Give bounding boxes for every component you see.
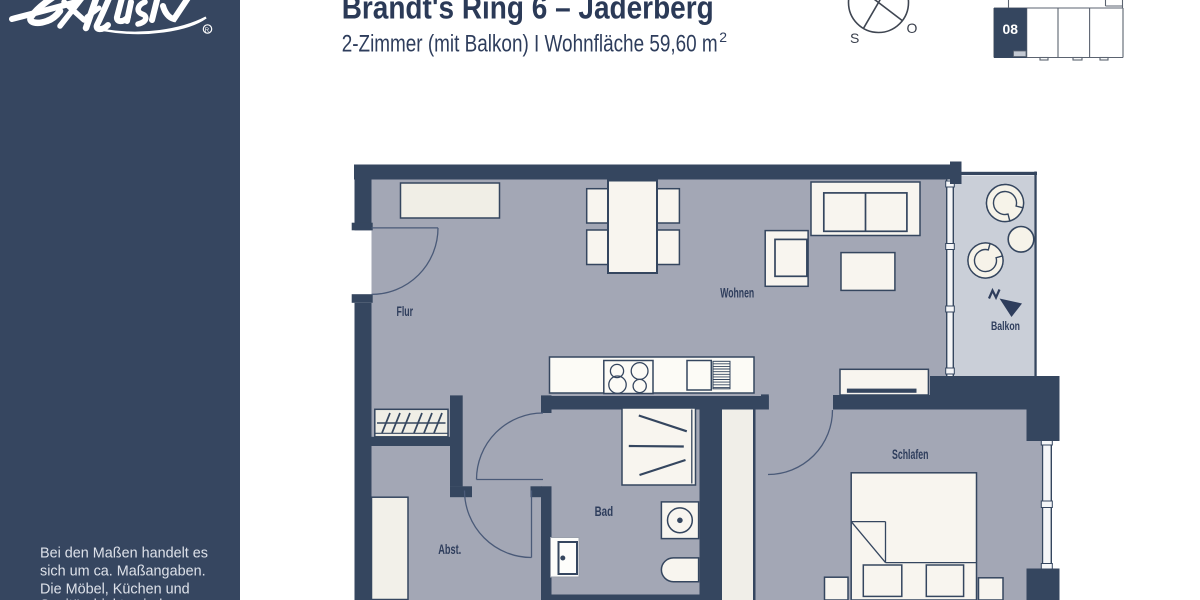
svg-text:Wohnen: Wohnen (720, 285, 754, 301)
svg-text:O: O (907, 20, 918, 36)
svg-text:2: 2 (719, 29, 727, 45)
svg-text:S: S (850, 30, 859, 46)
svg-text:sich um ca. Maßangaben.: sich um ca. Maßangaben. (40, 564, 206, 580)
svg-text:Balkon: Balkon (991, 319, 1020, 333)
svg-text:08: 08 (1003, 22, 1019, 37)
svg-text:R: R (205, 28, 210, 34)
svg-text:Bei den Maßen handelt es: Bei den Maßen handelt es (40, 546, 208, 562)
svg-text:2-Zimmer (mit Balkon) I Wohnfl: 2-Zimmer (mit Balkon) I Wohnfläche 59,60… (342, 30, 718, 57)
svg-text:Abst.: Abst. (438, 541, 461, 557)
svg-text:Flur: Flur (397, 303, 414, 319)
svg-text:Schlafen: Schlafen (892, 446, 929, 462)
svg-text:Brandt's Ring 6 – Jaderberg: Brandt's Ring 6 – Jaderberg (342, 0, 714, 26)
svg-text:Die Möbel, Küchen und: Die Möbel, Küchen und (40, 582, 190, 598)
svg-text:Bad: Bad (595, 503, 614, 519)
